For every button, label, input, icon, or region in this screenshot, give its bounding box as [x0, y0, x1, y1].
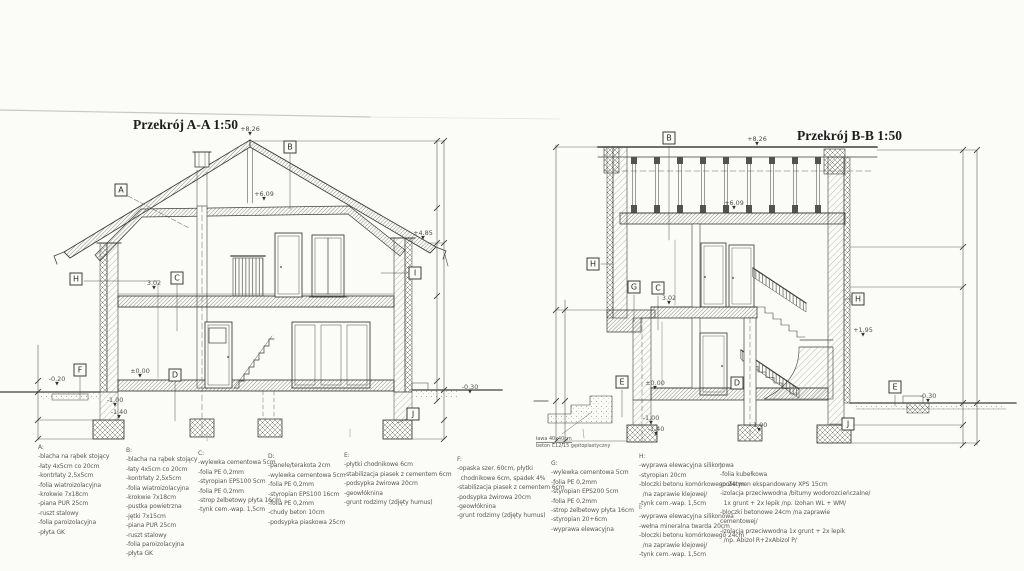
- level-triangle-icon: ▼: [648, 433, 665, 438]
- text-overlay: Przekrój A-A 1:50 Przekrój B-B 1:50 ABCD…: [0, 0, 1024, 571]
- level-triangle-icon: ▼: [413, 237, 433, 242]
- legend-column-e: E: -płytki chodnikowe 6cm -stabilizacja …: [344, 451, 452, 507]
- ref-label-a: A: [115, 184, 128, 197]
- elevation-mark: 3.02▼: [147, 280, 161, 292]
- elevation-mark: +6.09▼: [724, 200, 744, 212]
- ref-label-g: G: [628, 281, 641, 294]
- level-triangle-icon: ▼: [853, 334, 873, 339]
- level-triangle-icon: ▼: [920, 400, 937, 405]
- ref-label-e: E: [889, 381, 902, 394]
- ref-label-j: J: [407, 408, 420, 421]
- ref-label-b: B: [284, 141, 297, 154]
- ref-label-h: H: [852, 293, 865, 306]
- elevation-mark: 3.02▼: [662, 295, 676, 307]
- level-triangle-icon: ▼: [254, 198, 274, 203]
- elevation-mark: +8.26▼: [240, 126, 260, 138]
- legend-column-g: G: -wylewka cementowa 5cm -folia PE 0,2m…: [551, 459, 634, 534]
- elevation-mark: -1.00▼: [751, 422, 768, 434]
- elevation-mark: ±0.00▼: [645, 380, 665, 392]
- elevation-mark: -1.40▼: [648, 426, 665, 438]
- elevation-mark: +1.95▼: [853, 327, 873, 339]
- ref-label-d: D: [731, 377, 744, 390]
- ref-label-h: H: [70, 273, 83, 286]
- level-triangle-icon: ▼: [147, 287, 161, 292]
- elevation-mark: ±0.00▼: [130, 368, 150, 380]
- level-triangle-icon: ▼: [751, 429, 768, 434]
- elevation-mark: -1.40▼: [111, 409, 128, 421]
- level-triangle-icon: ▼: [662, 302, 676, 307]
- ref-label-j: J: [842, 418, 855, 431]
- elevation-mark: -0.30▼: [462, 384, 479, 396]
- elevation-mark: +4.85▼: [413, 230, 433, 242]
- footing-note: ława 40x40cmbeton C12/15 gęstoplastyczny: [536, 436, 610, 449]
- legend-column-b: B: -blacha na rąbek stojący -łaty 4x5cm …: [126, 446, 197, 559]
- ref-label-c: C: [171, 272, 184, 285]
- level-triangle-icon: ▼: [111, 416, 128, 421]
- elevation-mark: -0.30▼: [920, 393, 937, 405]
- level-triangle-icon: ▼: [747, 143, 767, 148]
- ref-label-f: F: [74, 364, 87, 377]
- ref-label-h: H: [587, 258, 600, 271]
- ref-label-c: C: [652, 282, 665, 295]
- elevation-mark: +6.09▼: [254, 191, 274, 203]
- ref-label-b: B: [663, 132, 676, 145]
- elevation-mark: -0.20▼: [49, 376, 66, 388]
- ref-label-e: E: [616, 376, 629, 389]
- legend-column-a: A: -blacha na rąbek stojący -łaty 4x5cm …: [38, 443, 109, 537]
- legend-column-j: J: -folia kubełkowa -polistyren ekspando…: [720, 461, 870, 546]
- scanned-drawing-page: Przekrój A-A 1:50 Przekrój B-B 1:50 ABCD…: [0, 0, 1024, 571]
- ref-label-d: D: [169, 369, 182, 382]
- section-b-title: Przekrój B-B 1:50: [797, 128, 902, 144]
- level-triangle-icon: ▼: [49, 383, 66, 388]
- elevation-mark: +8.26▼: [747, 136, 767, 148]
- legend-column-f: F: -opaska szer. 60cm, płytki chodnikowe…: [457, 455, 565, 521]
- level-triangle-icon: ▼: [240, 133, 260, 138]
- level-triangle-icon: ▼: [645, 387, 665, 392]
- section-a-title: Przekrój A-A 1:50: [133, 117, 238, 133]
- level-triangle-icon: ▼: [130, 375, 150, 380]
- ref-label-i: I: [409, 267, 422, 280]
- level-triangle-icon: ▼: [724, 207, 744, 212]
- legend-column-d: D: -panele/terakota 2cm -wylewka cemento…: [268, 452, 345, 527]
- level-triangle-icon: ▼: [462, 391, 479, 396]
